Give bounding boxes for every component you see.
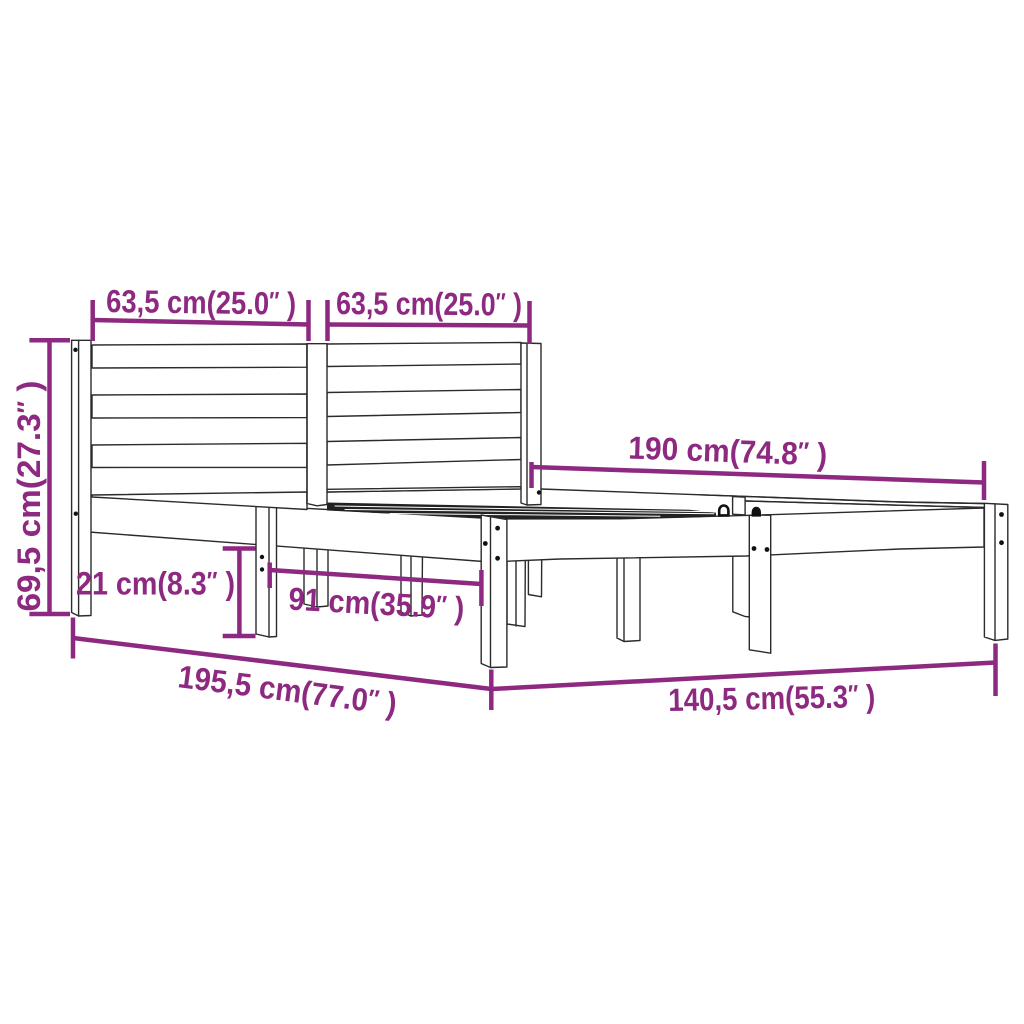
svg-text:63,5 cm(25.0″ ): 63,5 cm(25.0″ ) bbox=[336, 285, 522, 323]
svg-text:140,5 cm(55.3″ ): 140,5 cm(55.3″ ) bbox=[668, 678, 876, 718]
svg-text:69,5 cm(27.3″ ): 69,5 cm(27.3″ ) bbox=[11, 381, 47, 612]
svg-text:63,5 cm(25.0″ ): 63,5 cm(25.0″ ) bbox=[106, 283, 296, 322]
